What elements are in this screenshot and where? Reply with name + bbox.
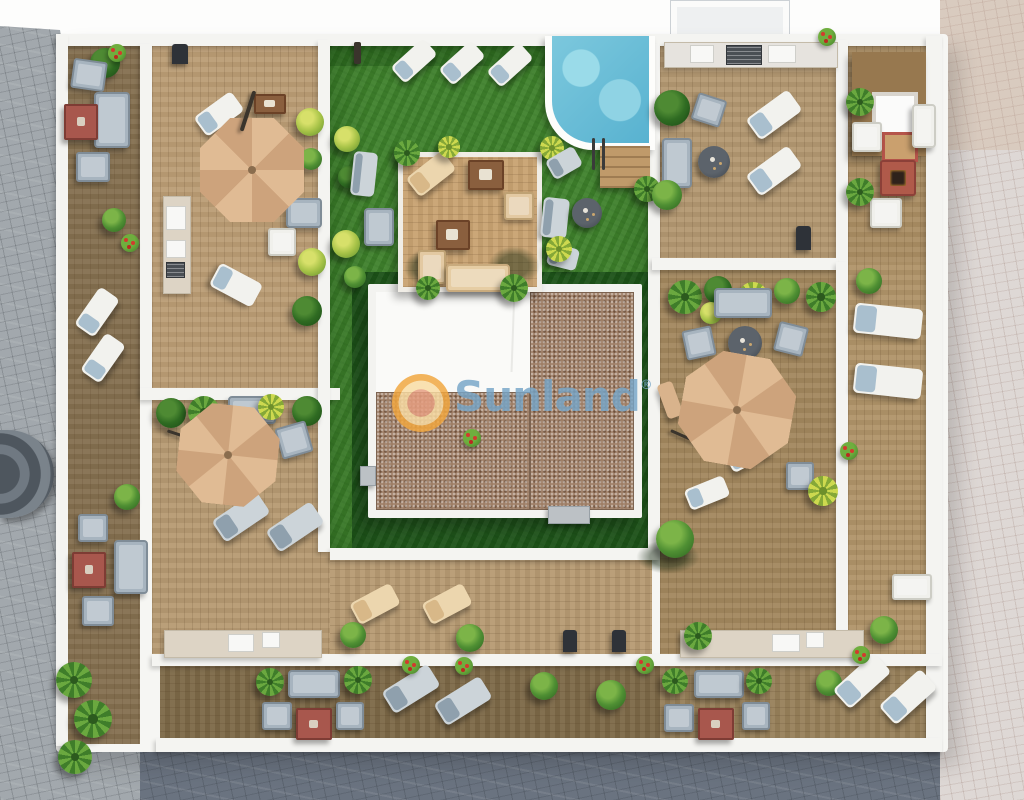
pool-water [552, 36, 649, 143]
pool-ladder-rail [602, 138, 605, 170]
palm-plant [546, 236, 572, 262]
sink [228, 634, 254, 652]
bush [296, 108, 324, 136]
hob [262, 632, 280, 648]
fire-pit-table [296, 708, 332, 740]
bush [656, 520, 694, 558]
bush [298, 248, 326, 276]
sun-lounger [540, 197, 570, 239]
bush [292, 296, 322, 326]
palm-plant [56, 662, 92, 698]
outdoor-sofa [364, 208, 394, 246]
bush [102, 208, 126, 232]
outdoor-sofa [714, 288, 772, 318]
armchair [78, 514, 108, 542]
armchair [268, 228, 296, 256]
fire-pit-table [698, 708, 734, 740]
coffee-table [468, 160, 504, 190]
bush [456, 624, 484, 652]
fire-pit-table [880, 160, 916, 196]
armchair [681, 325, 717, 361]
fern [654, 90, 690, 126]
coffee-table [436, 220, 470, 250]
bush [774, 278, 800, 304]
sunland-logo-icon [392, 374, 450, 432]
privacy-wall-divider [140, 44, 152, 392]
hob [166, 240, 186, 258]
outdoor-sofa [912, 104, 936, 148]
armchair [504, 192, 534, 220]
outdoor-sofa [94, 92, 130, 148]
bush [114, 484, 140, 510]
bush [340, 622, 366, 648]
watermark: Sunland® [388, 368, 668, 440]
bush [870, 616, 898, 644]
bush [856, 268, 882, 294]
barbecue-grill [172, 44, 188, 64]
parasol [200, 118, 304, 222]
palm-plant [394, 140, 420, 166]
outdoor-sofa [694, 670, 744, 698]
deck-terrace-left-strip [66, 44, 140, 744]
street-pavement-bottom [140, 744, 944, 800]
bush [596, 680, 626, 710]
palm-plant [662, 668, 688, 694]
aerial-render: Sunland® [0, 0, 1024, 800]
armchair [870, 198, 902, 228]
sink [772, 634, 800, 652]
palm-plant [74, 700, 112, 738]
palm-plant [684, 622, 712, 650]
planter-pot [840, 442, 858, 460]
palm-plant [438, 136, 460, 158]
palm-plant [500, 274, 528, 302]
planter-pot [852, 646, 870, 664]
palm-plant [746, 668, 772, 694]
bush [652, 180, 682, 210]
palm-plant [58, 740, 92, 774]
bush [332, 230, 360, 258]
privacy-wall-divider [836, 262, 848, 660]
privacy-wall-outer-bottom [156, 738, 942, 752]
round-table [698, 146, 730, 178]
armchair [82, 596, 114, 626]
pavement-warm-tint [940, 0, 1024, 150]
bush [334, 126, 360, 152]
brand-name: Sunland [454, 372, 640, 421]
barbecue-grill [166, 262, 185, 278]
privacy-wall-divider [652, 258, 838, 270]
fire-pit-table [72, 552, 106, 588]
barbecue-grill [612, 630, 626, 652]
barbecue-grill [726, 45, 762, 65]
palm-plant [416, 276, 440, 300]
palm-plant [846, 178, 874, 206]
planter-pot [818, 28, 836, 46]
hob [806, 632, 824, 648]
armchair [70, 58, 108, 92]
lamp-post [354, 42, 361, 64]
fire-pit-table [64, 104, 98, 140]
registered-trademark-icon: ® [640, 378, 652, 393]
sun-lounger [350, 151, 378, 197]
sink [768, 45, 796, 63]
armchair [336, 702, 364, 730]
privacy-wall-lawn-bottom [330, 548, 660, 560]
palm-plant [806, 282, 836, 312]
pool-ladder-rail [592, 138, 595, 170]
planter-pot [121, 234, 139, 252]
privacy-wall-divider [836, 40, 848, 262]
air-conditioner-unit [360, 466, 376, 486]
side-table [254, 94, 286, 114]
barbecue-grill [796, 226, 811, 250]
sink [166, 206, 186, 230]
armchair [76, 152, 110, 182]
palm-plant [256, 668, 284, 696]
barbecue-grill [563, 630, 577, 652]
watermark-brand-text: Sunland® [454, 372, 652, 421]
palm-plant [344, 666, 372, 694]
bush [530, 672, 558, 700]
air-conditioner-unit [548, 506, 590, 524]
bush [344, 266, 366, 288]
planter-pot [455, 657, 473, 675]
palm-plant [808, 476, 838, 506]
outdoor-sofa [114, 540, 148, 594]
bench [892, 574, 932, 600]
armchair [262, 702, 292, 730]
planter-pot [108, 44, 126, 62]
round-table [572, 198, 602, 228]
armchair [852, 122, 882, 152]
planter-pot [636, 656, 654, 674]
outdoor-sofa [288, 670, 340, 698]
armchair [742, 702, 770, 730]
palm-plant [846, 88, 874, 116]
cabinet [690, 45, 714, 63]
planter-pot [402, 656, 420, 674]
privacy-wall-outer-left [56, 34, 68, 746]
fern [156, 398, 186, 428]
palm-plant [258, 394, 284, 420]
palm-plant [668, 280, 702, 314]
armchair [664, 704, 694, 732]
